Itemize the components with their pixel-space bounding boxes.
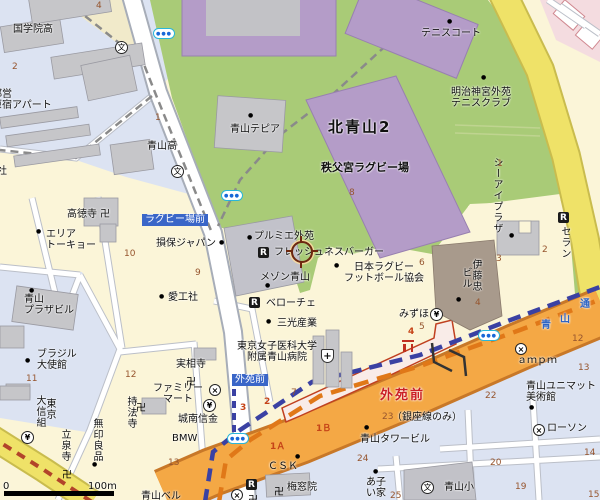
block-number: 3 xyxy=(496,255,502,265)
block-number: 13 xyxy=(578,364,589,374)
aoyama-tepia-label: 青山テピア xyxy=(230,124,280,135)
aoyama-high-label: 青山高 xyxy=(147,141,177,152)
subway-entrance-icon: ●●● xyxy=(221,190,243,201)
block-number: 4 xyxy=(408,328,414,338)
road-name-dori-label: 通 xyxy=(580,299,590,310)
meiji-jingu-gaien-tennis-club-label: 明治神宮外苑 テニスクラブ xyxy=(451,87,511,109)
block-number: 23 xyxy=(382,413,393,423)
ginza-line-only-label: （銀座線のみ） xyxy=(392,412,462,423)
poi-dot: ● xyxy=(29,288,34,295)
school-icon: 文 xyxy=(171,165,184,178)
road-name-yama-label: 山 xyxy=(560,314,570,325)
block-number: 4 xyxy=(475,299,481,309)
sompo-japan-label: 損保ジャパン xyxy=(156,238,216,249)
torii-icon xyxy=(402,340,414,350)
block-number: 25 xyxy=(390,492,401,500)
restaurant-icon: R xyxy=(249,297,260,308)
block-number: 12 xyxy=(572,335,583,345)
poi-dot: ● xyxy=(219,240,224,247)
block-number: 22 xyxy=(485,392,496,402)
kita-aoyama-2-label: 北青山2 xyxy=(328,119,391,136)
gaienmae-station-label: 外苑前 xyxy=(380,389,425,403)
poi-dot: ● xyxy=(364,425,369,432)
veloce-cafe-label: ベローチェ xyxy=(266,298,316,309)
block-number: 2 xyxy=(12,63,18,73)
toei-harajuku-apartment-label: 都営 原宿アパート xyxy=(0,89,52,111)
poi-dot: ● xyxy=(481,75,486,82)
map-canvas[interactable]: 国学院高都営 原宿アパート青山高社青山テピア北青山2テニスコート明治神宮外苑 テ… xyxy=(0,0,600,500)
block-number: 1 xyxy=(497,160,503,170)
aoyama-plaza-building-label: 青山 プラザビル xyxy=(24,294,74,316)
block-number: 14 xyxy=(584,449,595,459)
bank-icon: ¥ xyxy=(430,308,443,321)
restaurant-icon: R xyxy=(246,479,257,490)
poi-dot: ● xyxy=(529,405,534,412)
itochu-building-label-1: 伊藤忠 xyxy=(470,259,481,292)
convenience-icon: × xyxy=(533,424,545,436)
poi-dot: ● xyxy=(92,462,97,469)
scale-zero-label: 0 xyxy=(3,481,9,492)
block-number: 10 xyxy=(124,250,135,260)
muji-label: 無印良品 xyxy=(91,418,102,462)
mizuho-label: みずほ xyxy=(399,309,429,320)
block-number: 3 xyxy=(240,404,246,414)
hospital-icon: + xyxy=(321,349,334,363)
block-number: 8 xyxy=(349,189,355,199)
block-number: 6 xyxy=(419,259,425,269)
jonan-shinkin-label: 城南信金 xyxy=(178,414,218,425)
aoyama-elementary-label: 青山小 xyxy=(444,482,474,493)
gaienmae-stop-label: 外苑前 xyxy=(232,374,268,386)
subway-entrance-icon: ●●● xyxy=(153,28,175,39)
convenience-icon: × xyxy=(231,489,243,500)
restaurant-icon: R xyxy=(258,247,269,258)
subway-entrance-icon: ●●● xyxy=(227,433,249,444)
kokugakuin-high-label: 国学院高 xyxy=(13,24,53,35)
poi-dot: ● xyxy=(248,113,253,120)
jihoji-temple-label: 持法寺 xyxy=(125,396,136,429)
temple-icon: 卍 xyxy=(186,373,196,388)
poi-dot: ● xyxy=(447,19,452,26)
ako-partial-label: あ子 い家 xyxy=(366,477,386,499)
block-number: 24 xyxy=(357,455,368,465)
poi-dot: ● xyxy=(266,319,271,326)
partial-company-label: 社 xyxy=(0,166,7,177)
ampm-label: ａｍｐｍ xyxy=(517,355,557,366)
poi-dot: ● xyxy=(373,469,378,476)
temple-icon: 卍 xyxy=(274,483,284,498)
poi-dot: ● xyxy=(247,235,252,242)
temple-icon: 卍 xyxy=(136,399,146,414)
subway-entrance-icon: ●●● xyxy=(478,330,500,341)
bmw-label: BMW xyxy=(172,433,197,444)
block-number: 7 xyxy=(291,389,297,399)
block-number: 4 xyxy=(96,2,102,12)
exit-1b-label: 1Ｂ xyxy=(316,425,331,435)
aoyama-bell-partial-label: 青山ベル xyxy=(141,491,181,500)
brazil-embassy-label: ブラジル 大使館 xyxy=(37,349,77,371)
area-tokyo-label: エリア トーキョー xyxy=(46,229,96,251)
block-number: 1 xyxy=(155,114,161,124)
poi-dot: ● xyxy=(295,454,300,461)
block-number: 15 xyxy=(588,491,599,500)
premier-gaien-label: プルミエ外苑 xyxy=(254,231,314,242)
tennis-court-label: テニスコート xyxy=(421,28,481,39)
block-number: 20 xyxy=(490,459,501,469)
jissoji-temple-label: 実相寺 xyxy=(176,359,206,370)
aikosha-label: 愛工社 xyxy=(168,292,198,303)
block-number: 2 xyxy=(542,246,548,256)
school-icon: 文 xyxy=(421,481,434,494)
scale-100m-label: 100m xyxy=(88,481,117,492)
poi-dot: ● xyxy=(456,297,461,304)
dai-tokyo-shinkumi-label-2: 東京 xyxy=(44,398,55,420)
lawson-label: ローソン xyxy=(547,423,587,434)
poi-dot: ● xyxy=(159,294,164,301)
school-icon: 文 xyxy=(115,41,128,54)
japan-rugby-football-union-label: 日本ラグビー フットボール協会 xyxy=(344,262,424,284)
restaurant-icon: R xyxy=(558,212,569,223)
block-number: 19 xyxy=(515,483,526,493)
bank-icon: ¥ xyxy=(21,431,34,444)
aoyama-unimat-museum-label: 青山ユニマット 美術館 xyxy=(526,381,596,403)
convenience-icon: × xyxy=(209,384,221,396)
itochu-building-label-2: ビル xyxy=(460,267,471,289)
block-number: 13 xyxy=(168,459,179,469)
poi-dot: ● xyxy=(36,229,41,236)
block-number: 9 xyxy=(195,269,201,279)
temple-icon: 卍 xyxy=(62,466,72,481)
rugby-jo-mae-stop-label: ラグビー場前 xyxy=(142,214,208,226)
aoyama-tower-building-label: 青山タワービル xyxy=(360,434,430,445)
poi-dot: ● xyxy=(265,283,270,290)
csk-label: ＣＳＫ xyxy=(268,461,298,472)
sanko-sangyo-label: 三光産業 xyxy=(277,318,317,329)
baisoin-temple-label: 梅窓院 xyxy=(287,482,317,493)
bank-icon: ¥ xyxy=(203,399,216,412)
convenience-icon: × xyxy=(515,343,527,355)
tokyo-womens-medical-univ-hospital-label: 東京女子医科大学 附属青山病院 xyxy=(237,341,317,363)
exit-1a-label: 1Ａ xyxy=(270,443,285,453)
road-name-ao-label: 青 xyxy=(541,320,551,331)
ryusenji-temple-label: 立泉寺 xyxy=(59,429,70,462)
kotokuji-temple-label: 高徳寺 卍 xyxy=(67,209,110,220)
block-number: 2 xyxy=(264,398,270,408)
block-number: 5 xyxy=(419,323,425,333)
temple-icon: 卍 xyxy=(248,491,258,500)
block-number: 11 xyxy=(26,375,37,385)
poi-dot: ● xyxy=(509,233,514,240)
chichibunomiya-rugby-stadium-label: 秩父宮ラグビー場 xyxy=(321,162,409,174)
map-center-crosshair xyxy=(291,241,313,263)
poi-dot: ● xyxy=(25,358,30,365)
block-number: 12 xyxy=(125,371,136,381)
poi-dot: ● xyxy=(334,263,339,270)
seran-label: セラン xyxy=(559,226,570,259)
